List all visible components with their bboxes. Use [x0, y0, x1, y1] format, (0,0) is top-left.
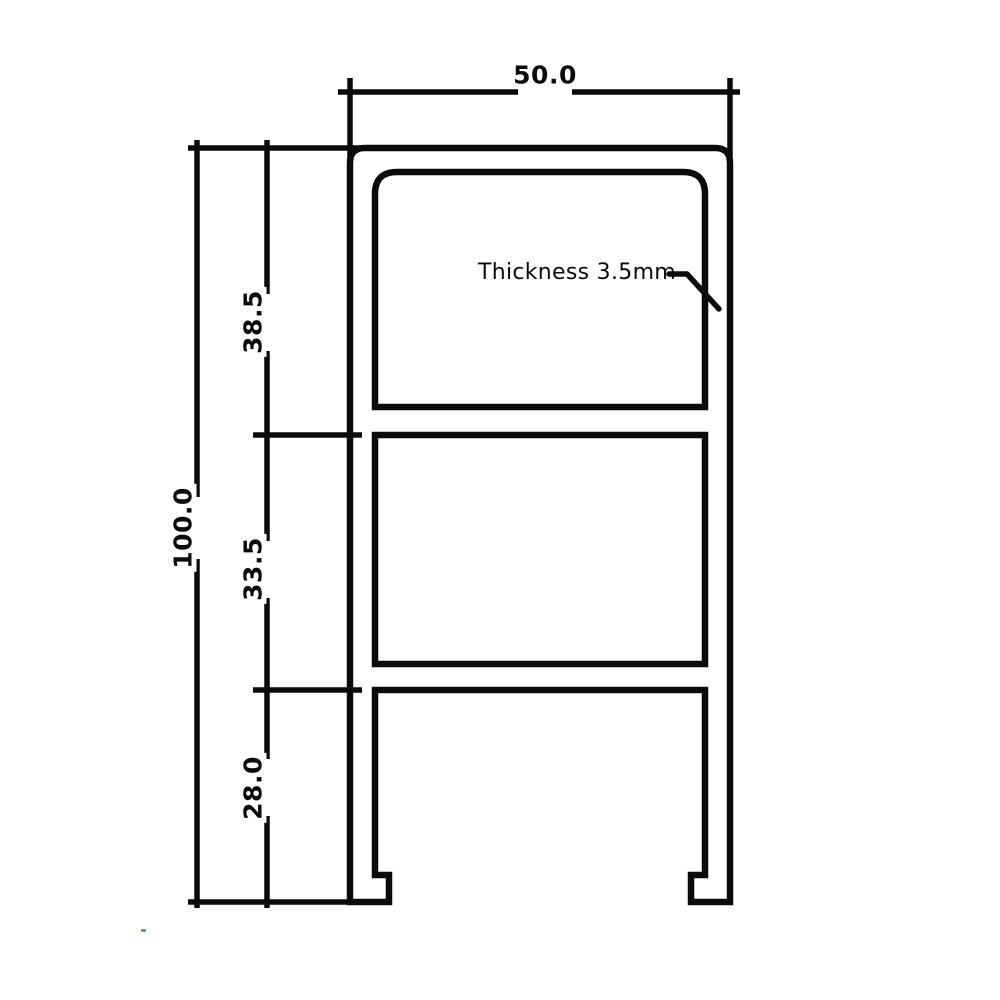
extrusion-profile-drawing	[0, 0, 1000, 1000]
segment-middle-dimension-label: 33.5	[240, 534, 267, 604]
chamber-middle-cavity	[375, 435, 705, 664]
thickness-annotation-label: Thickness 3.5mm	[478, 262, 676, 284]
segment-bottom-dimension-label: 28.0	[240, 753, 267, 823]
chamber-top-cavity	[375, 172, 705, 407]
width-dimension-label: 50.0	[510, 62, 580, 89]
thickness-leader-line	[669, 274, 719, 309]
pixel-artifact	[141, 929, 146, 932]
segment-top-dimension-label: 38.5	[240, 287, 267, 357]
technical-drawing-canvas: 50.0 100.0 38.5 33.5 28.0 Thickness 3.5m…	[0, 0, 1000, 1000]
extension-lines	[188, 148, 362, 902]
overall-height-dimension-label: 100.0	[170, 484, 197, 572]
